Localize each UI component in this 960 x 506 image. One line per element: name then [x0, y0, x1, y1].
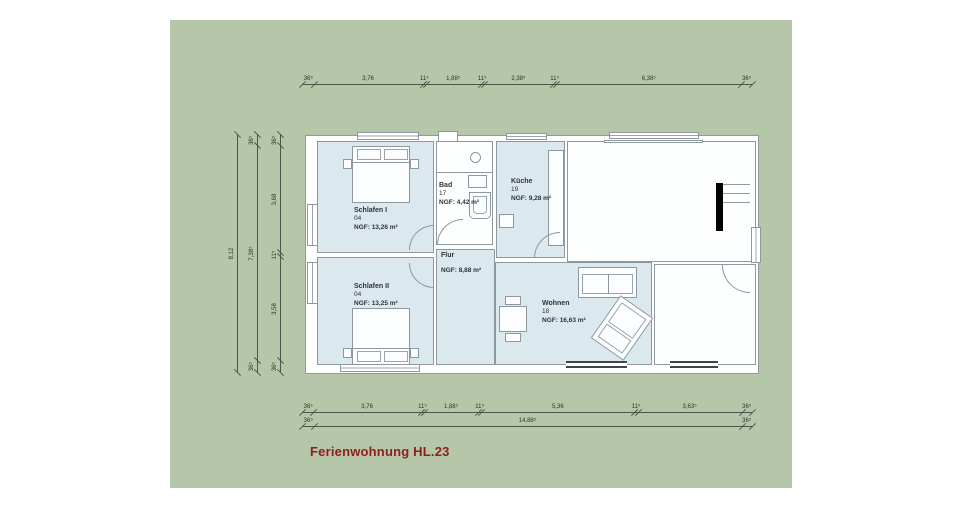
dimension-label: 8,12 — [229, 248, 235, 260]
shower-drain — [470, 152, 481, 163]
chimney — [716, 183, 723, 231]
room-name: Wohnen — [542, 299, 586, 308]
page-title: Ferienwohnung HL.23 — [310, 444, 450, 459]
nightstand — [410, 159, 419, 169]
dimension-label: 36⁵ — [272, 362, 278, 371]
room-label-bad: Bad 17 NGF: 4,42 m² — [439, 181, 479, 207]
dimension-segment: 3,76 — [314, 72, 423, 84]
window — [670, 361, 718, 368]
room-name: Schlafen I — [354, 206, 398, 215]
bed-double — [352, 146, 410, 203]
dimension-segment: 36⁵ — [268, 361, 280, 372]
nightstand — [410, 348, 419, 358]
room-area: NGF: 16,63 m² — [542, 317, 586, 325]
window — [307, 262, 318, 304]
shelf-line — [723, 202, 750, 203]
pillow — [357, 149, 381, 160]
pillow — [384, 351, 408, 362]
dimension-chain-bottom-total: 36⁵14,88⁵36⁵ — [303, 414, 752, 427]
sofa-divider — [608, 274, 609, 294]
room-name: Flur — [441, 251, 481, 260]
pillow — [384, 149, 408, 160]
room-label-schlafen-1: Schlafen I 04 NGF: 13,26 m² — [354, 206, 398, 232]
dimension-label: 36⁵ — [304, 418, 313, 424]
room-number: 04 — [354, 291, 398, 299]
bed-line — [353, 348, 409, 349]
kitchen-appliance — [499, 214, 514, 228]
window-lintel — [604, 140, 703, 143]
room-label-flur: Flur NGF: 8,88 m² — [441, 251, 481, 276]
dimension-label: 6,38⁵ — [642, 76, 656, 82]
dimension-label: 3,76 — [362, 76, 374, 82]
dimension-segment: 36⁵ — [742, 414, 753, 426]
bed-double — [352, 308, 410, 365]
room-area: NGF: 4,42 m² — [439, 199, 479, 207]
dimension-label: 36⁵ — [304, 404, 313, 410]
dimension-label: 3,58 — [272, 303, 278, 315]
dimension-label: 3,63⁵ — [683, 404, 697, 410]
dimension-label: 36⁵ — [742, 76, 751, 82]
dimension-chain-left-middle: 36⁵7,38⁵36⁵ — [245, 135, 258, 372]
dimension-segment: 7,38⁵ — [245, 146, 257, 362]
dimension-segment: 36⁵ — [245, 361, 257, 372]
dimension-chain-bottom: 36⁵3,7611⁵1,88⁵11⁵5,3611⁵3,63⁵36⁵ — [303, 400, 752, 413]
dimension-chain-left-inner: 36⁵3,5811⁵3,6836⁵ — [268, 135, 281, 372]
room-number — [441, 260, 481, 267]
nightstand — [343, 159, 352, 169]
dimension-label: 36⁵ — [304, 76, 313, 82]
dimension-segment: 36⁵ — [303, 400, 313, 412]
room-area: NGF: 13,26 m² — [354, 224, 398, 232]
dimension-label: 36⁵ — [249, 136, 255, 145]
dimension-label: 5,36 — [552, 404, 564, 410]
dimension-segment: 3,58 — [268, 257, 280, 362]
sofa — [578, 267, 637, 298]
dimension-segment: 36⁵ — [742, 400, 752, 412]
chair — [505, 296, 521, 305]
dimension-segment: 3,63⁵ — [638, 400, 742, 412]
room-label-schlafen-2: Schlafen II 04 NGF: 13,25 m² — [354, 282, 398, 308]
dimension-segment: 1,88⁵ — [426, 72, 481, 84]
window — [506, 133, 547, 140]
dimension-chain-top: 36⁵3,7611⁵1,88⁵11⁵2,38⁵11⁵6,38⁵36⁵ — [303, 72, 752, 85]
dimension-label: 7,38⁵ — [249, 246, 255, 260]
dimension-chain-left-outer: 8,12 — [225, 135, 238, 372]
dimension-label: 3,68 — [272, 194, 278, 206]
dimension-segment: 36⁵ — [741, 72, 752, 84]
room-area: NGF: 8,88 m² — [441, 267, 481, 275]
dimension-label: 36⁵ — [742, 404, 751, 410]
shelf-line — [723, 193, 750, 194]
window — [438, 131, 458, 142]
dimension-label: 3,76 — [361, 404, 373, 410]
room-number: 17 — [439, 190, 479, 198]
nightstand — [343, 348, 352, 358]
window — [609, 132, 699, 139]
dimension-segment: 14,88⁵ — [314, 414, 742, 426]
dimension-segment: 5,36 — [481, 400, 634, 412]
room-label-wohnen: Wohnen 18 NGF: 16,63 m² — [542, 299, 586, 325]
dimension-label: 1,88⁵ — [446, 76, 460, 82]
room-name: Küche — [511, 177, 551, 186]
dimension-label: 36⁵ — [272, 136, 278, 145]
dimension-segment: 6,38⁵ — [556, 72, 741, 84]
dimension-segment: 8,12 — [225, 135, 237, 372]
dimension-segment: 2,38⁵ — [484, 72, 553, 84]
floorplan-canvas: Schlafen I 04 NGF: 13,26 m² Schlafen II … — [0, 0, 960, 506]
dimension-segment: 36⁵ — [303, 72, 314, 84]
dimension-label: 2,38⁵ — [511, 76, 525, 82]
dimension-segment: 3,68 — [268, 146, 280, 254]
dimension-segment: 36⁵ — [245, 135, 257, 146]
room-label-kueche: Küche 19 NGF: 9,28 m² — [511, 177, 551, 203]
dimension-label: 36⁵ — [249, 362, 255, 371]
room-number: 18 — [542, 308, 586, 316]
dimension-label: 36⁵ — [742, 418, 751, 424]
pillow — [357, 351, 381, 362]
bed-line — [353, 162, 409, 163]
window — [307, 204, 318, 246]
door-niche — [751, 227, 761, 263]
room-number: 04 — [354, 215, 398, 223]
shower-divider — [436, 172, 493, 173]
window — [566, 361, 627, 368]
chair — [505, 333, 521, 342]
window — [340, 364, 420, 372]
shelf-line — [723, 184, 750, 185]
dimension-segment: 11⁵ — [268, 253, 280, 256]
window — [357, 132, 419, 140]
room-number: 19 — [511, 186, 551, 194]
dimension-label: 1,88⁵ — [444, 404, 458, 410]
dining-table — [499, 306, 527, 332]
room-area: NGF: 13,25 m² — [354, 300, 398, 308]
room-area: NGF: 9,28 m² — [511, 195, 551, 203]
room-name: Schlafen II — [354, 282, 398, 291]
dimension-segment: 36⁵ — [303, 414, 314, 426]
dimension-segment: 1,88⁵ — [424, 400, 478, 412]
dimension-segment: 36⁵ — [268, 135, 280, 146]
room-name: Bad — [439, 181, 479, 190]
dimension-segment: 3,76 — [313, 400, 420, 412]
dimension-label: 14,88⁵ — [519, 418, 537, 424]
